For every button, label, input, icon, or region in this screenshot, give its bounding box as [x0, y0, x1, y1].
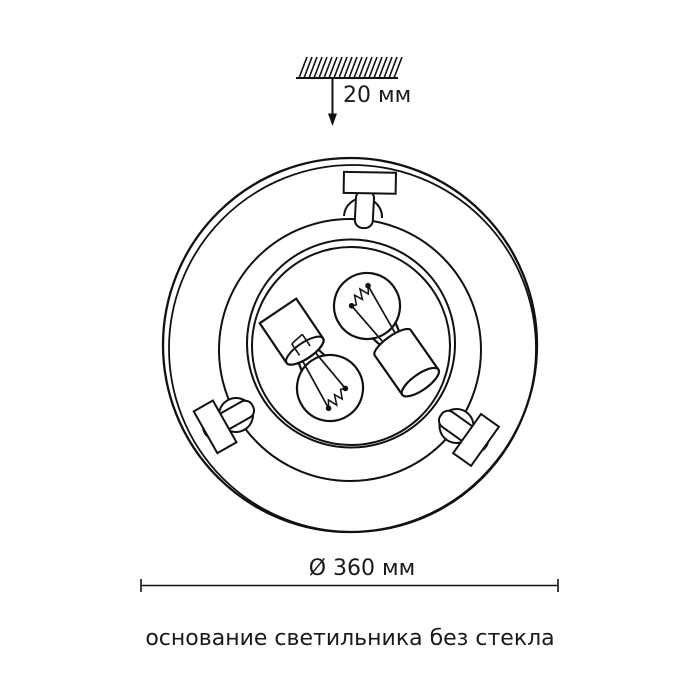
caption-label: основание светильника без стекла — [0, 626, 700, 652]
lamp-technical-diagram: 20 мм Ø 360 мм основание светильника без… — [0, 0, 700, 700]
middle-circle — [219, 219, 481, 481]
clip-lower-right — [427, 395, 500, 466]
ceiling-hatch — [296, 57, 402, 78]
lamp-base-drawing — [163, 158, 537, 532]
mount-height-label: 20 мм — [343, 83, 411, 109]
diameter-label: Ø 360 мм — [262, 556, 462, 582]
clip-lower-left — [193, 385, 265, 454]
clip-top — [341, 170, 397, 230]
mount-height-arrow — [328, 78, 337, 126]
